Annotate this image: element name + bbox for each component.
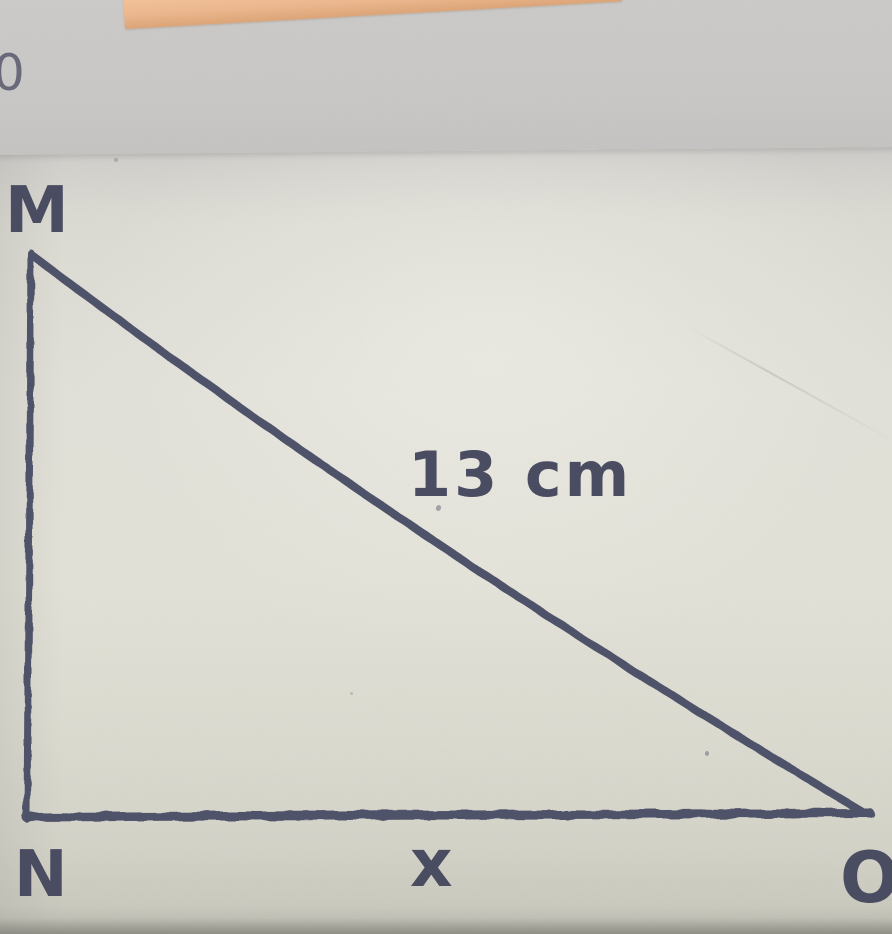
- vertex-label-n: N: [14, 838, 68, 912]
- triangle-side-mn: [27, 253, 31, 819]
- vertex-label-m: M: [5, 174, 69, 248]
- hypotenuse-length-label: 13 cm: [408, 438, 632, 511]
- right-triangle-diagram: M N O x 13 cm: [0, 0, 892, 934]
- photo-bottom-shadow: [0, 918, 892, 934]
- base-side-label: x: [410, 825, 453, 902]
- triangle-side-no: [26, 813, 870, 817]
- worksheet-photo: 0 M N O x 13 cm: [0, 0, 892, 934]
- vertex-label-o: O: [840, 837, 892, 919]
